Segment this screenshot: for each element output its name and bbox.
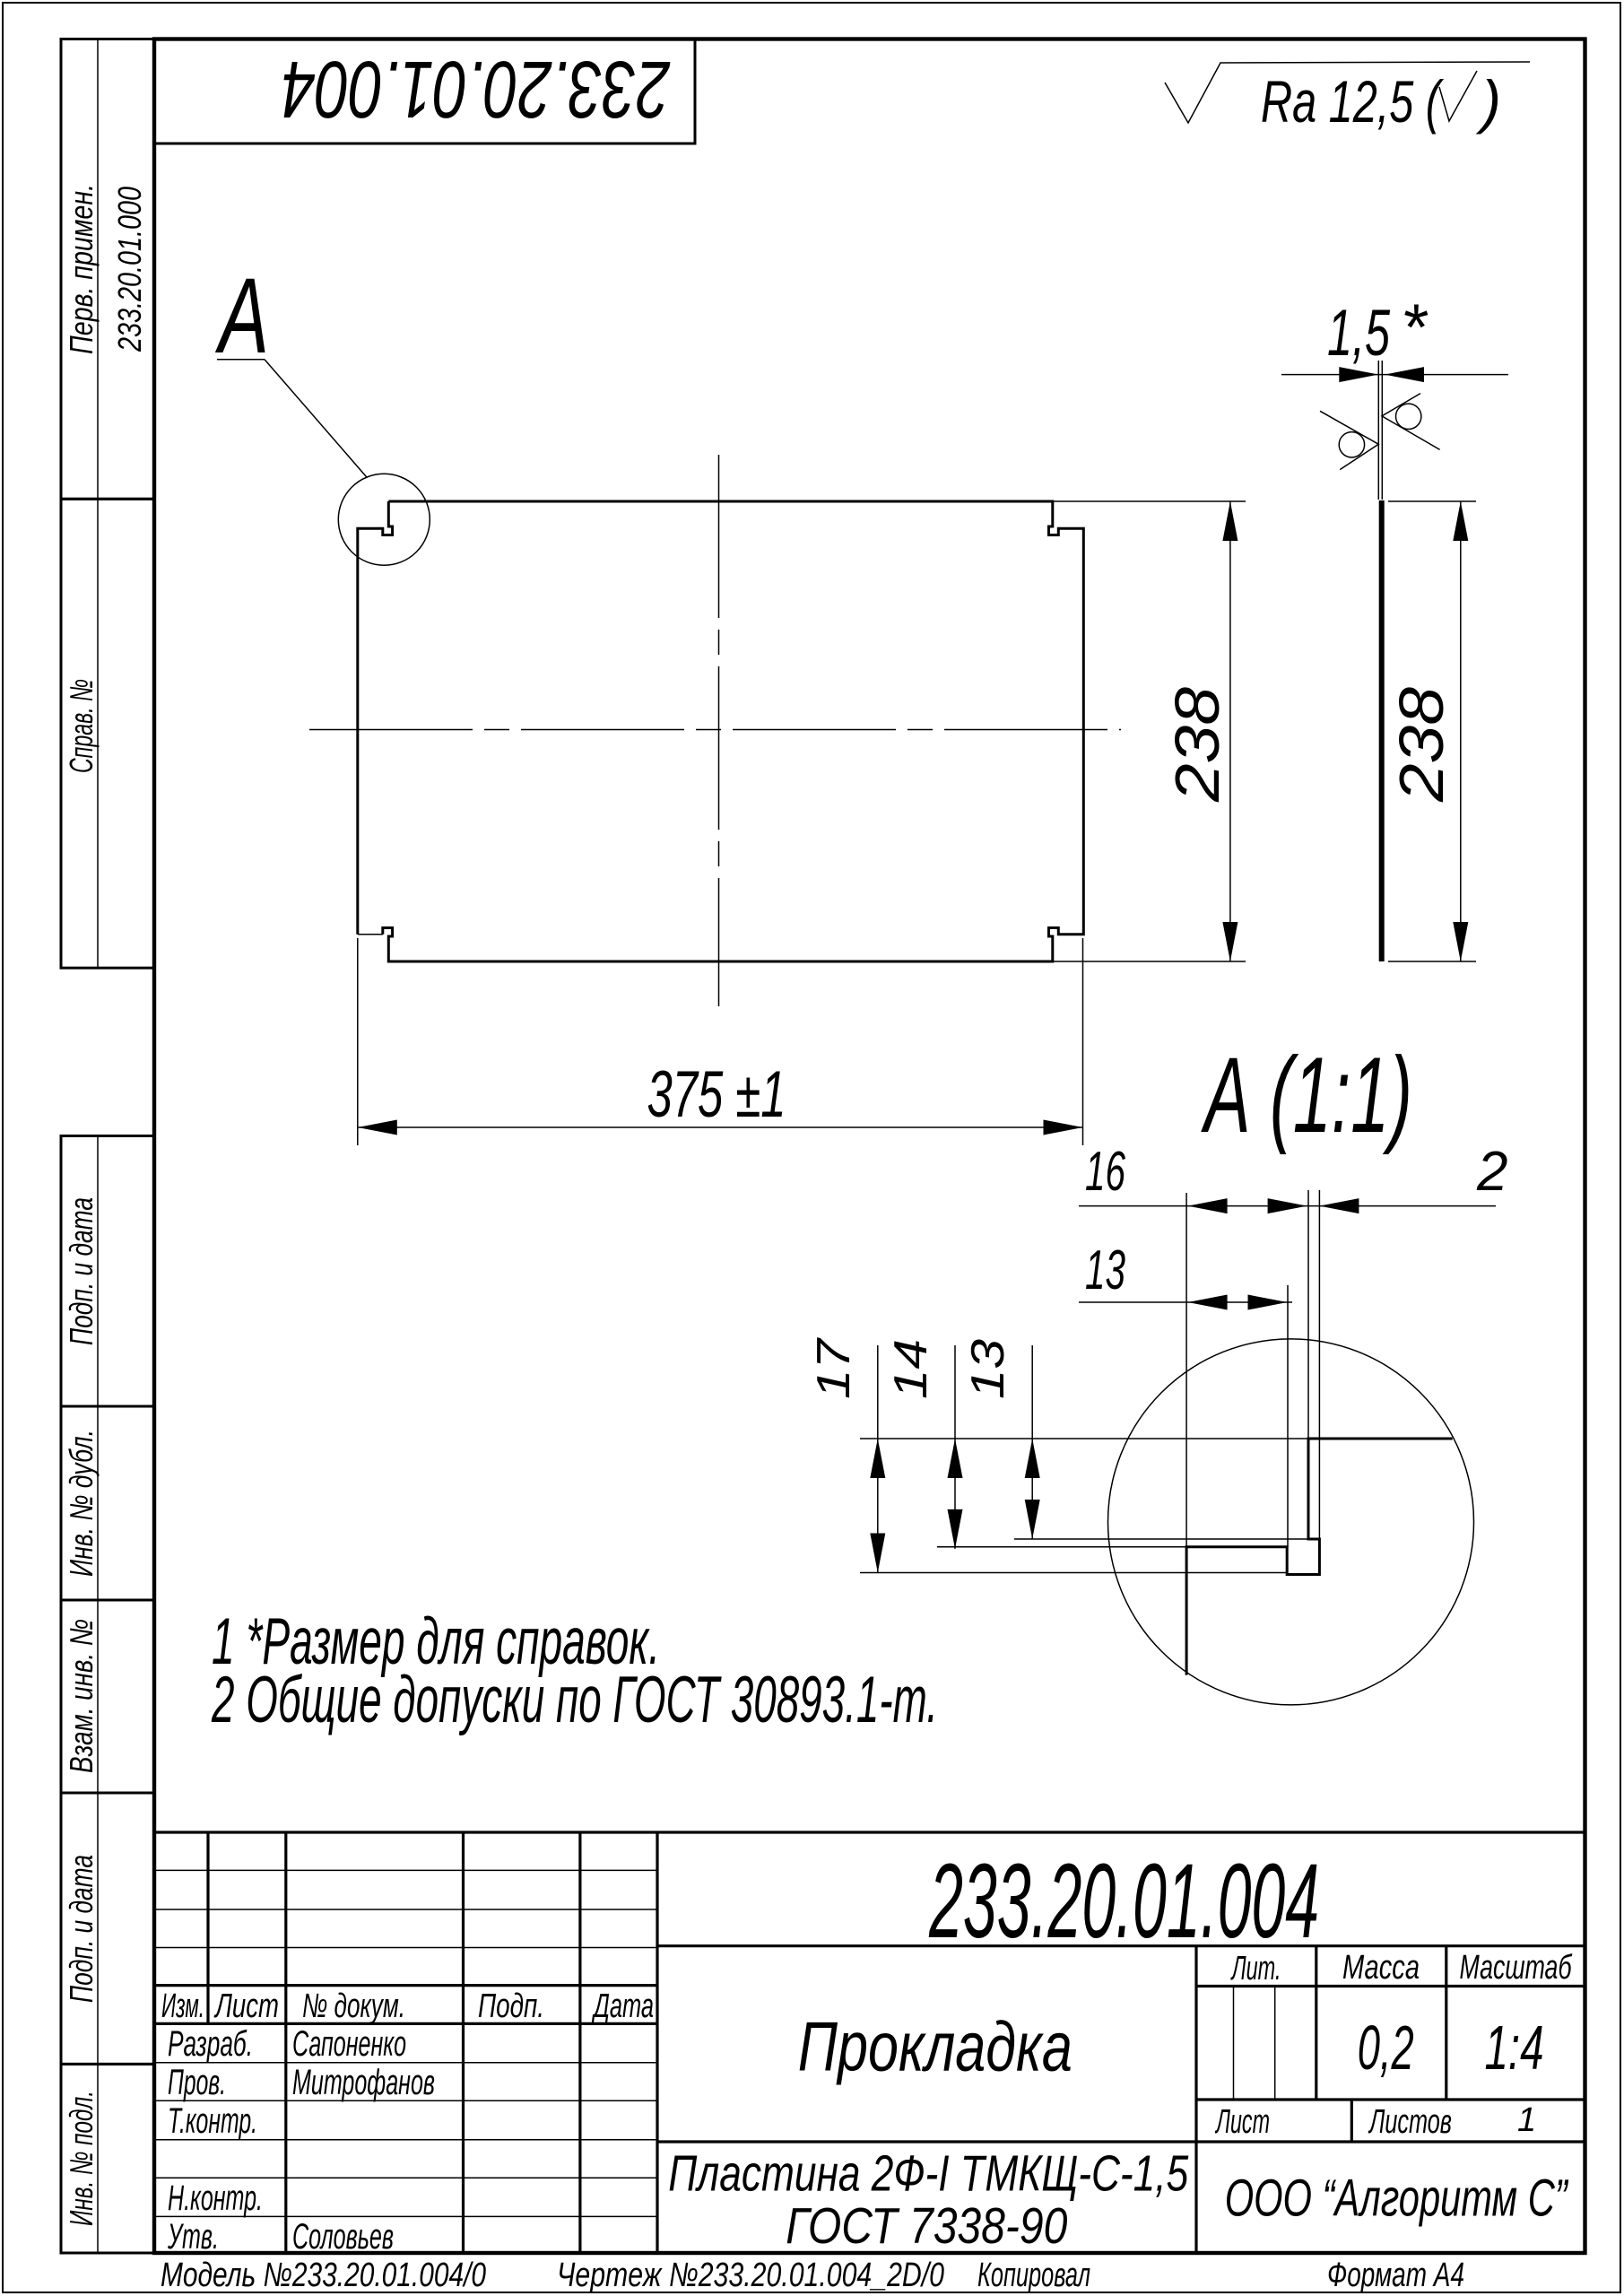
svg-text:Масса: Масса (1342, 1949, 1420, 1987)
svg-text:А: А (215, 256, 269, 376)
svg-text:Листов: Листов (1368, 2103, 1452, 2141)
svg-text:Лист: Лист (1214, 2103, 1270, 2141)
svg-text:Ra 12,5 (: Ra 12,5 ( (1261, 68, 1444, 135)
svg-text:Копировал: Копировал (977, 2257, 1090, 2294)
svg-text:2: 2 (1476, 1141, 1507, 1203)
svg-text:Сапоненко: Сапоненко (292, 2024, 406, 2064)
svg-text:№ докум.: № докум. (302, 1987, 405, 2025)
svg-text:Подп. и дата: Подп. и дата (63, 1855, 100, 2003)
svg-text:А (1:1): А (1:1) (1201, 1035, 1412, 1155)
svg-text:Подп.: Подп. (478, 1987, 544, 2025)
svg-text:*: * (1401, 291, 1429, 364)
svg-text:17: 17 (808, 1337, 860, 1399)
svg-text:375 ±1: 375 ±1 (647, 1058, 786, 1131)
svg-text:Митрофанов: Митрофанов (292, 2063, 435, 2102)
svg-text:Пластина 2Ф-I ТМКЩ-С-1,5: Пластина 2Ф-I ТМКЩ-С-1,5 (668, 2145, 1188, 2203)
svg-text:Лист: Лист (213, 1987, 279, 2025)
svg-text:238: 238 (1162, 687, 1232, 803)
svg-text:Взам. инв. №: Взам. инв. № (63, 1619, 100, 1773)
svg-text:Чертеж №233.20.01.004_2D/0: Чертеж №233.20.01.004_2D/0 (557, 2257, 944, 2294)
svg-text:Формат А4: Формат А4 (1327, 2257, 1464, 2294)
svg-text:Разраб.: Разраб. (168, 2024, 253, 2064)
svg-text:Пров.: Пров. (168, 2063, 226, 2102)
svg-text:233.20.01.000: 233.20.01.000 (111, 187, 148, 352)
svg-text:Прокладка: Прокладка (798, 2007, 1073, 2086)
svg-text:14: 14 (885, 1339, 937, 1399)
svg-text:Т.контр.: Т.контр. (168, 2101, 257, 2141)
svg-text:Лит.: Лит. (1230, 1950, 1281, 1987)
svg-text:238: 238 (1386, 687, 1456, 803)
svg-text:1: 1 (1517, 2101, 1536, 2139)
svg-text:1:4: 1:4 (1485, 2013, 1544, 2083)
svg-text:Утв.: Утв. (167, 2217, 219, 2257)
svg-text:13: 13 (1085, 1239, 1125, 1301)
svg-text:16: 16 (1085, 1141, 1125, 1203)
svg-text:Масштаб: Масштаб (1460, 1949, 1573, 1987)
svg-text:Справ. №: Справ. № (63, 679, 100, 773)
svg-text:Модель №233.20.01.004/0: Модель №233.20.01.004/0 (161, 2257, 486, 2294)
svg-text:233.20.01.004: 233.20.01.004 (282, 44, 671, 134)
svg-text:ГОСТ 7338-90: ГОСТ 7338-90 (786, 2197, 1067, 2255)
svg-text:Дата: Дата (591, 1987, 654, 2025)
svg-text:233.20.01.004: 233.20.01.004 (929, 1842, 1320, 1961)
svg-text:2 Общие допуски по ГОСТ 30893.: 2 Общие допуски по ГОСТ 30893.1-т. (211, 1664, 938, 1736)
svg-text:13: 13 (962, 1339, 1014, 1399)
svg-text:Изм.: Изм. (161, 1987, 204, 2025)
svg-text:Перв. примен.: Перв. примен. (63, 184, 100, 354)
svg-text:Соловьев: Соловьев (292, 2217, 394, 2257)
svg-text:Инв. № подл.: Инв. № подл. (63, 2091, 100, 2226)
svg-text:Н.контр.: Н.контр. (168, 2179, 263, 2218)
svg-text:0,2: 0,2 (1358, 2013, 1414, 2083)
svg-text:Подп. и дата: Подп. и дата (63, 1197, 100, 1345)
svg-text:1,5: 1,5 (1327, 297, 1390, 370)
svg-text:Инв. № дубл.: Инв. № дубл. (63, 1430, 100, 1577)
svg-text:ООО “Алгоритм С”: ООО “Алгоритм С” (1225, 2170, 1569, 2228)
